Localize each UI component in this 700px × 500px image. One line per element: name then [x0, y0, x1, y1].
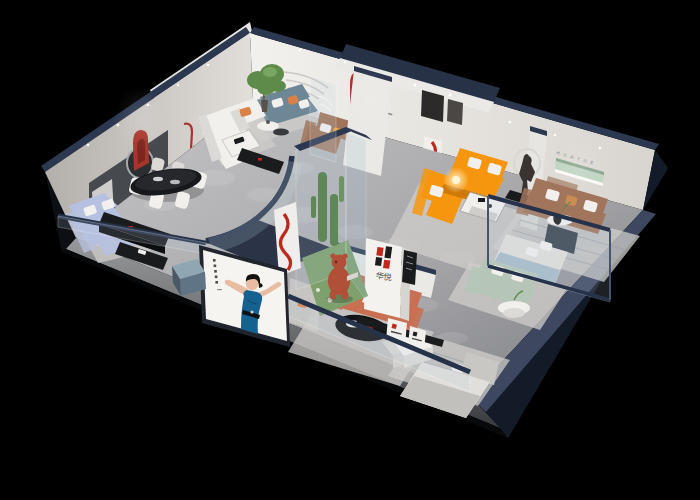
- brand-logo-pillar: 华悦: [364, 238, 417, 321]
- showroom-render: H U A Y U E: [0, 0, 700, 500]
- isometric-scene: H U A Y U E: [0, 0, 700, 500]
- wall-art-panel: [447, 99, 463, 125]
- entrance-glass-panel: [310, 76, 336, 162]
